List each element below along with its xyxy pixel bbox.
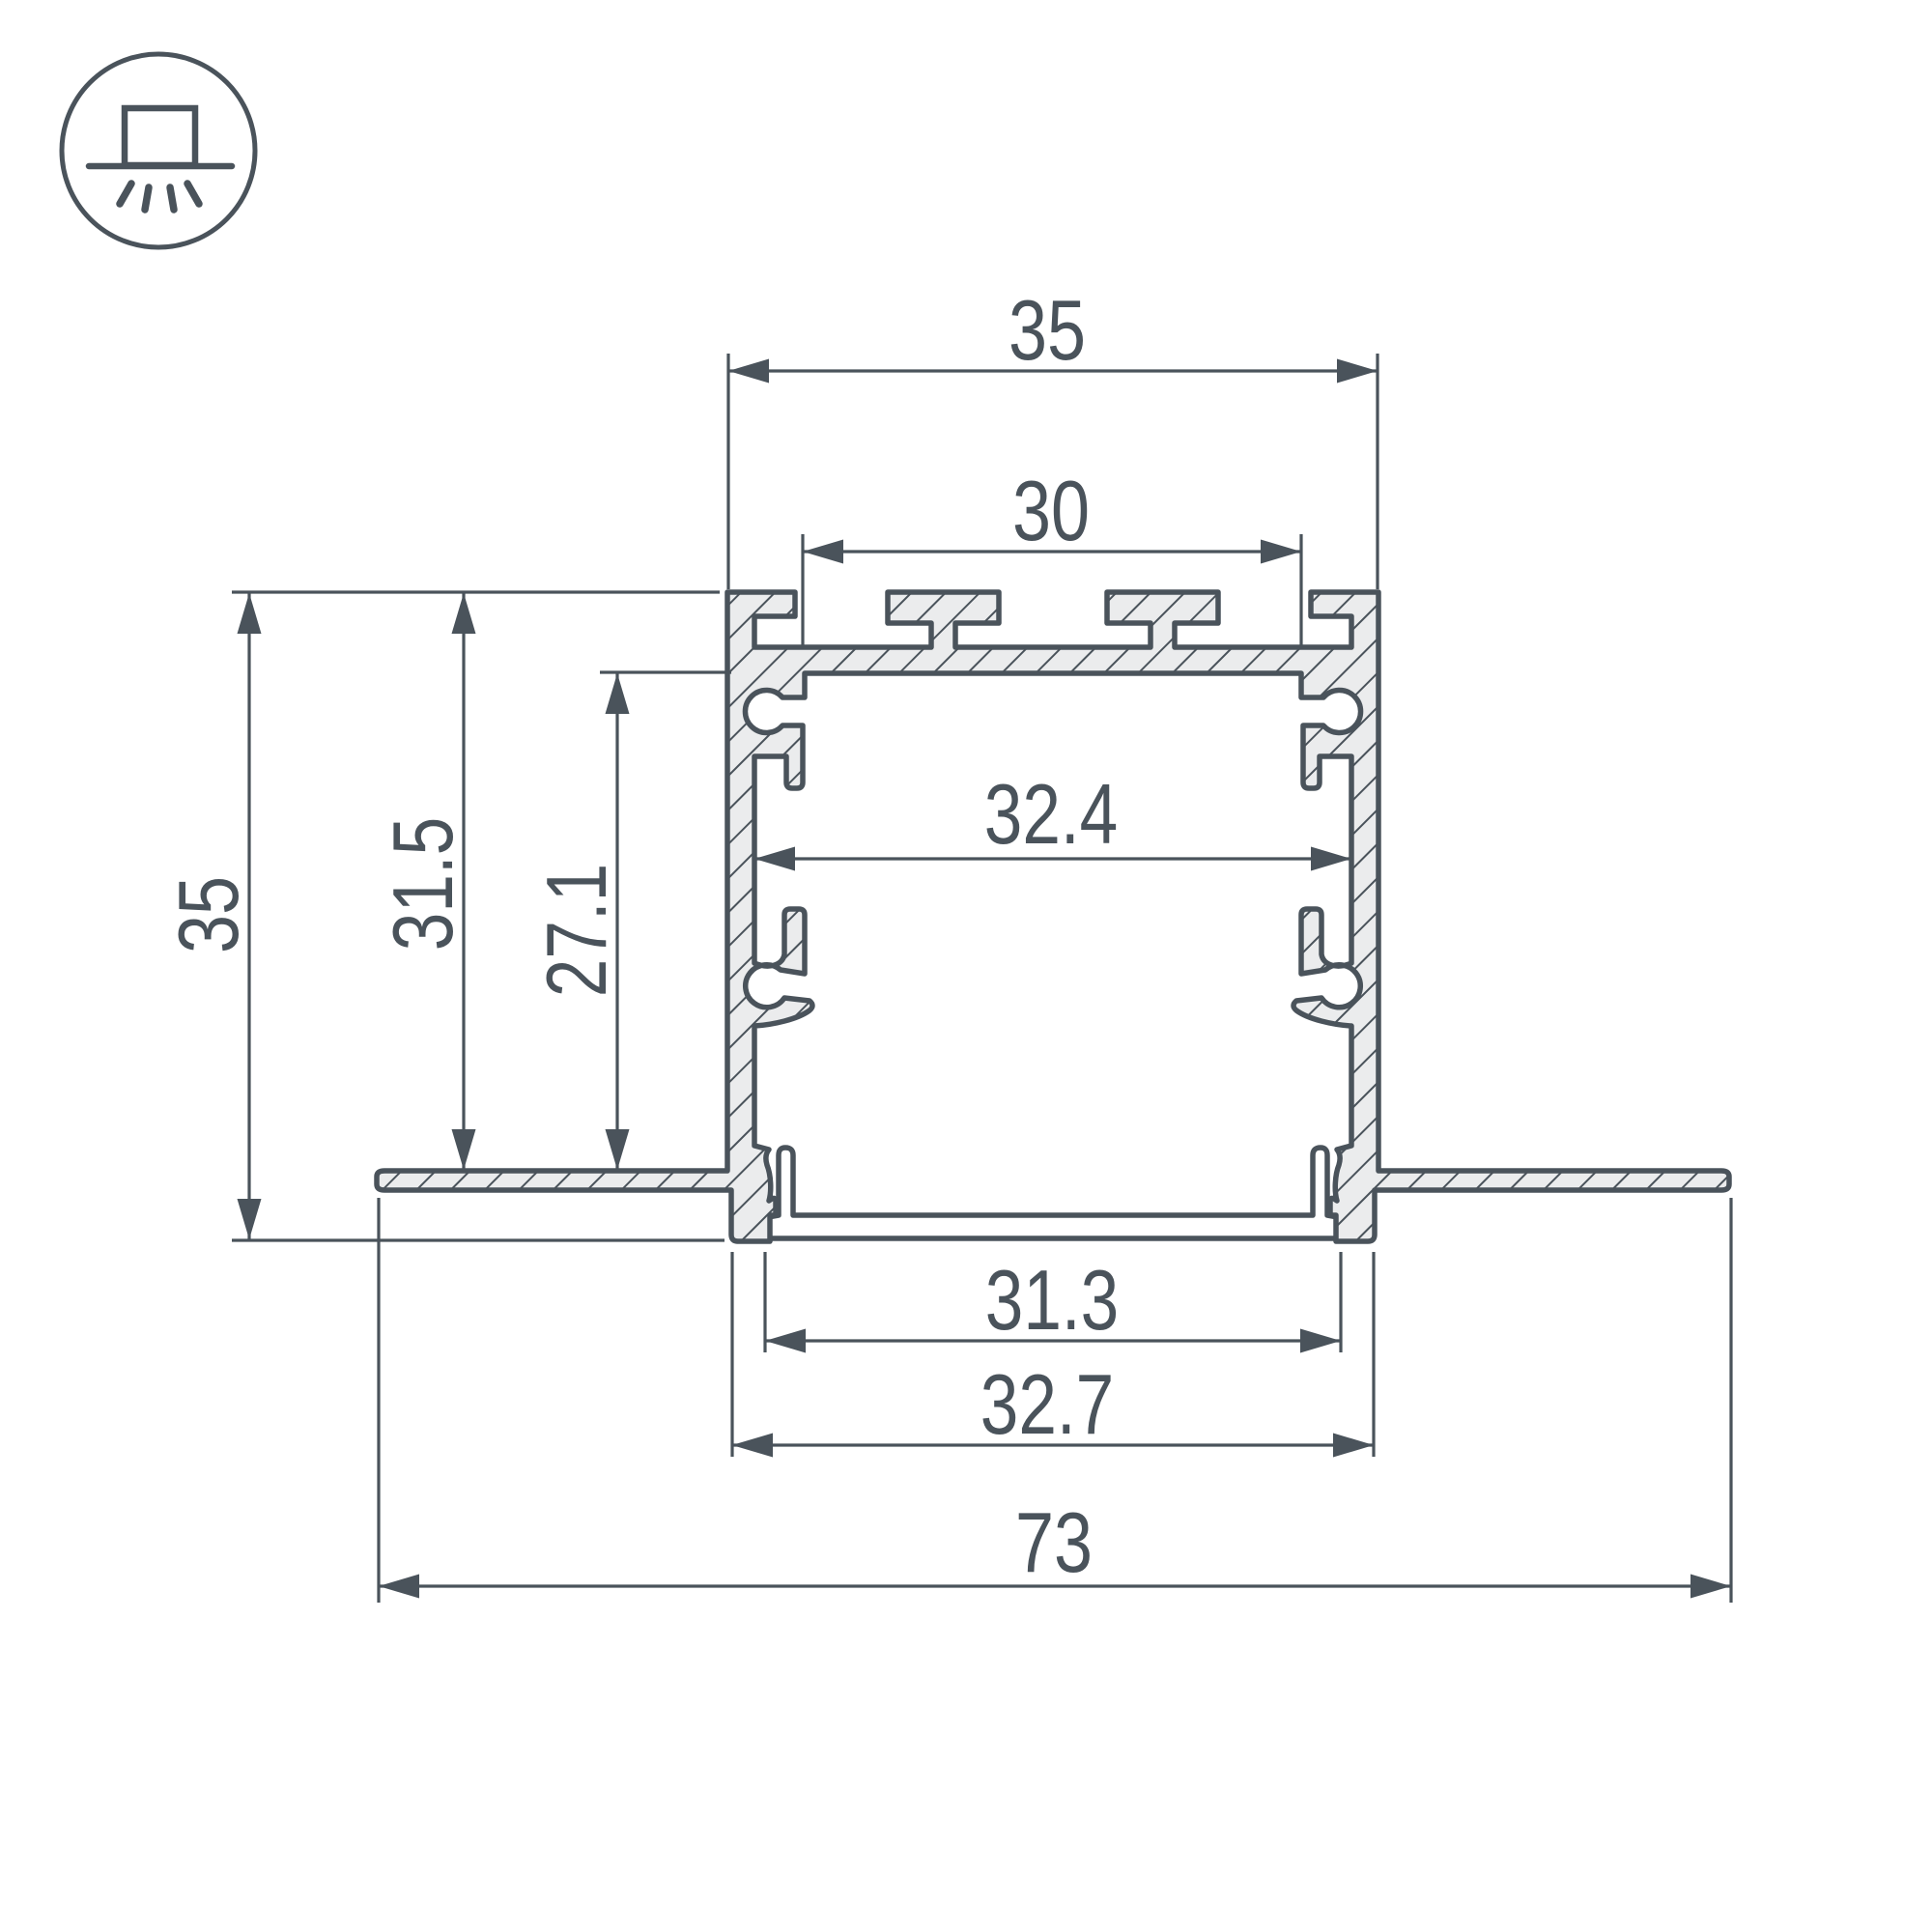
- svg-text:30: 30: [1012, 463, 1090, 558]
- svg-text:32.7: 32.7: [980, 1356, 1115, 1452]
- svg-text:73: 73: [1015, 1494, 1093, 1590]
- svg-text:35: 35: [1009, 282, 1086, 378]
- svg-text:32.4: 32.4: [984, 766, 1119, 862]
- svg-text:27.1: 27.1: [528, 864, 624, 998]
- svg-text:35: 35: [160, 876, 256, 953]
- svg-text:31.3: 31.3: [985, 1252, 1120, 1348]
- svg-text:31.5: 31.5: [375, 817, 470, 952]
